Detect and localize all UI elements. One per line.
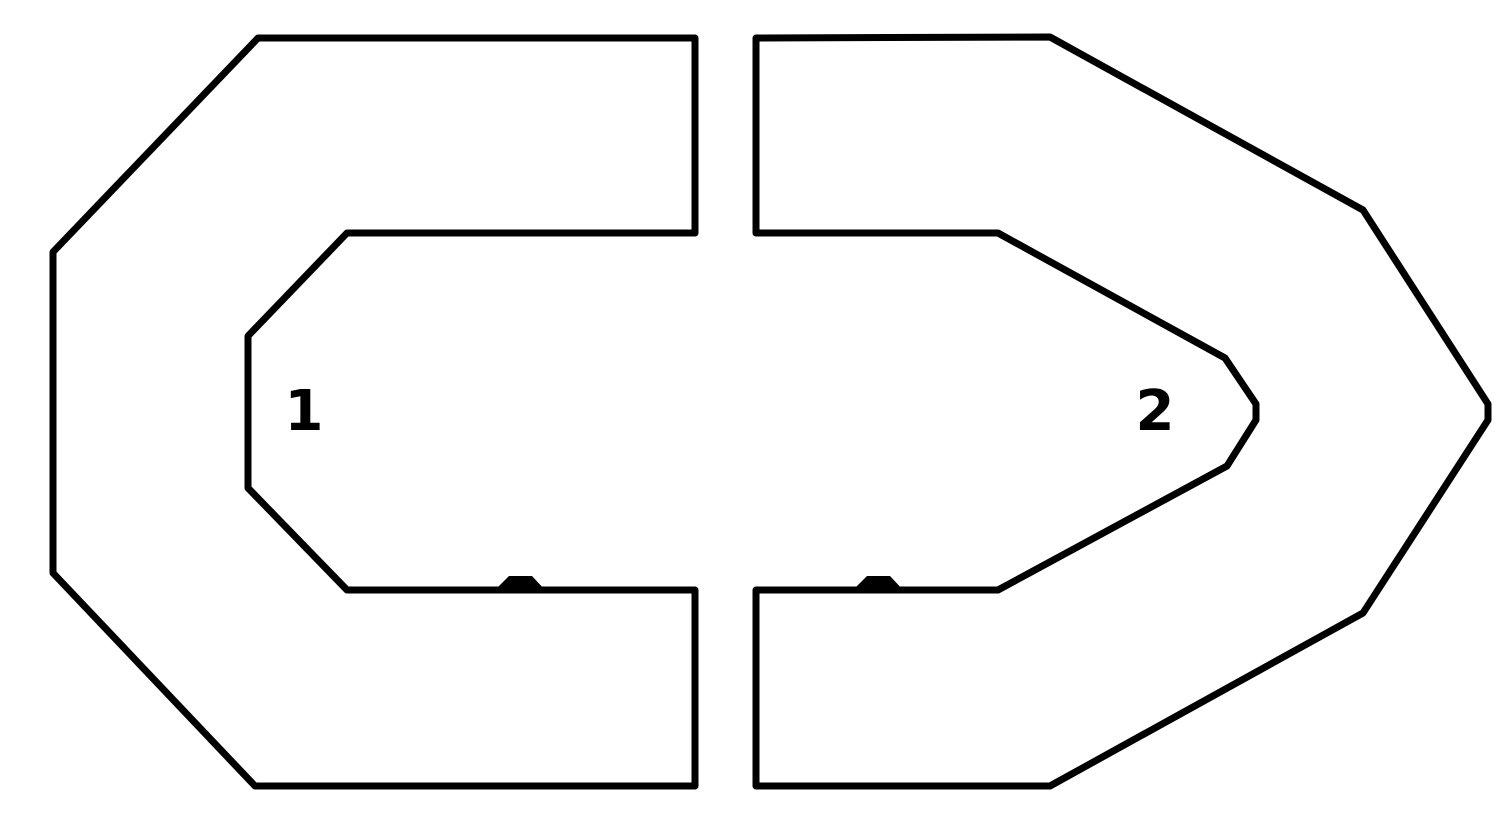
sector-2-outline xyxy=(756,37,1488,786)
sector-1-label: 1 xyxy=(285,379,324,444)
sector-2-label: 2 xyxy=(1136,379,1175,444)
sector-1-marker-bump xyxy=(494,576,546,591)
sector-1-outline xyxy=(53,38,695,786)
sector-2-marker-bump xyxy=(852,576,904,591)
track-diagram: 1 2 xyxy=(0,0,1502,825)
diagram-canvas: 1 2 xyxy=(0,0,1502,825)
